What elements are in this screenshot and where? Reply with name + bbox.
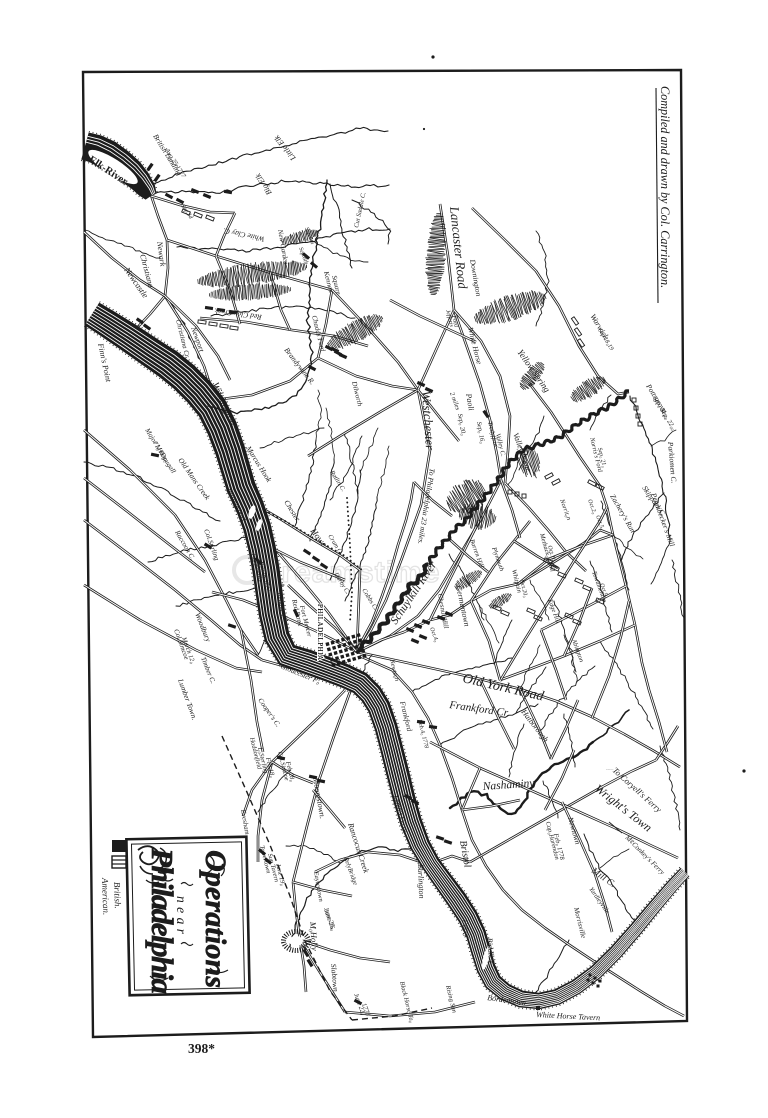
svg-text:British.: British.: [112, 882, 123, 909]
svg-text:Compiled and drawn by Col. Car: Compiled and drawn by Col. Carrington.: [658, 86, 672, 288]
svg-text:PHILADELPHIA: PHILADELPHIA: [316, 604, 324, 661]
svg-text:American.: American.: [100, 877, 111, 916]
svg-text:398*: 398*: [188, 1041, 215, 1056]
svg-text:M₀Holly: M₀Holly: [308, 920, 320, 951]
svg-text:Operations: Operations: [199, 850, 232, 988]
svg-text:To Coryell's Ferry: To Coryell's Ferry: [606, 769, 614, 771]
svg-text:Burlington: Burlington: [416, 864, 426, 899]
svg-text:Philadelphia: Philadelphia: [145, 847, 180, 994]
